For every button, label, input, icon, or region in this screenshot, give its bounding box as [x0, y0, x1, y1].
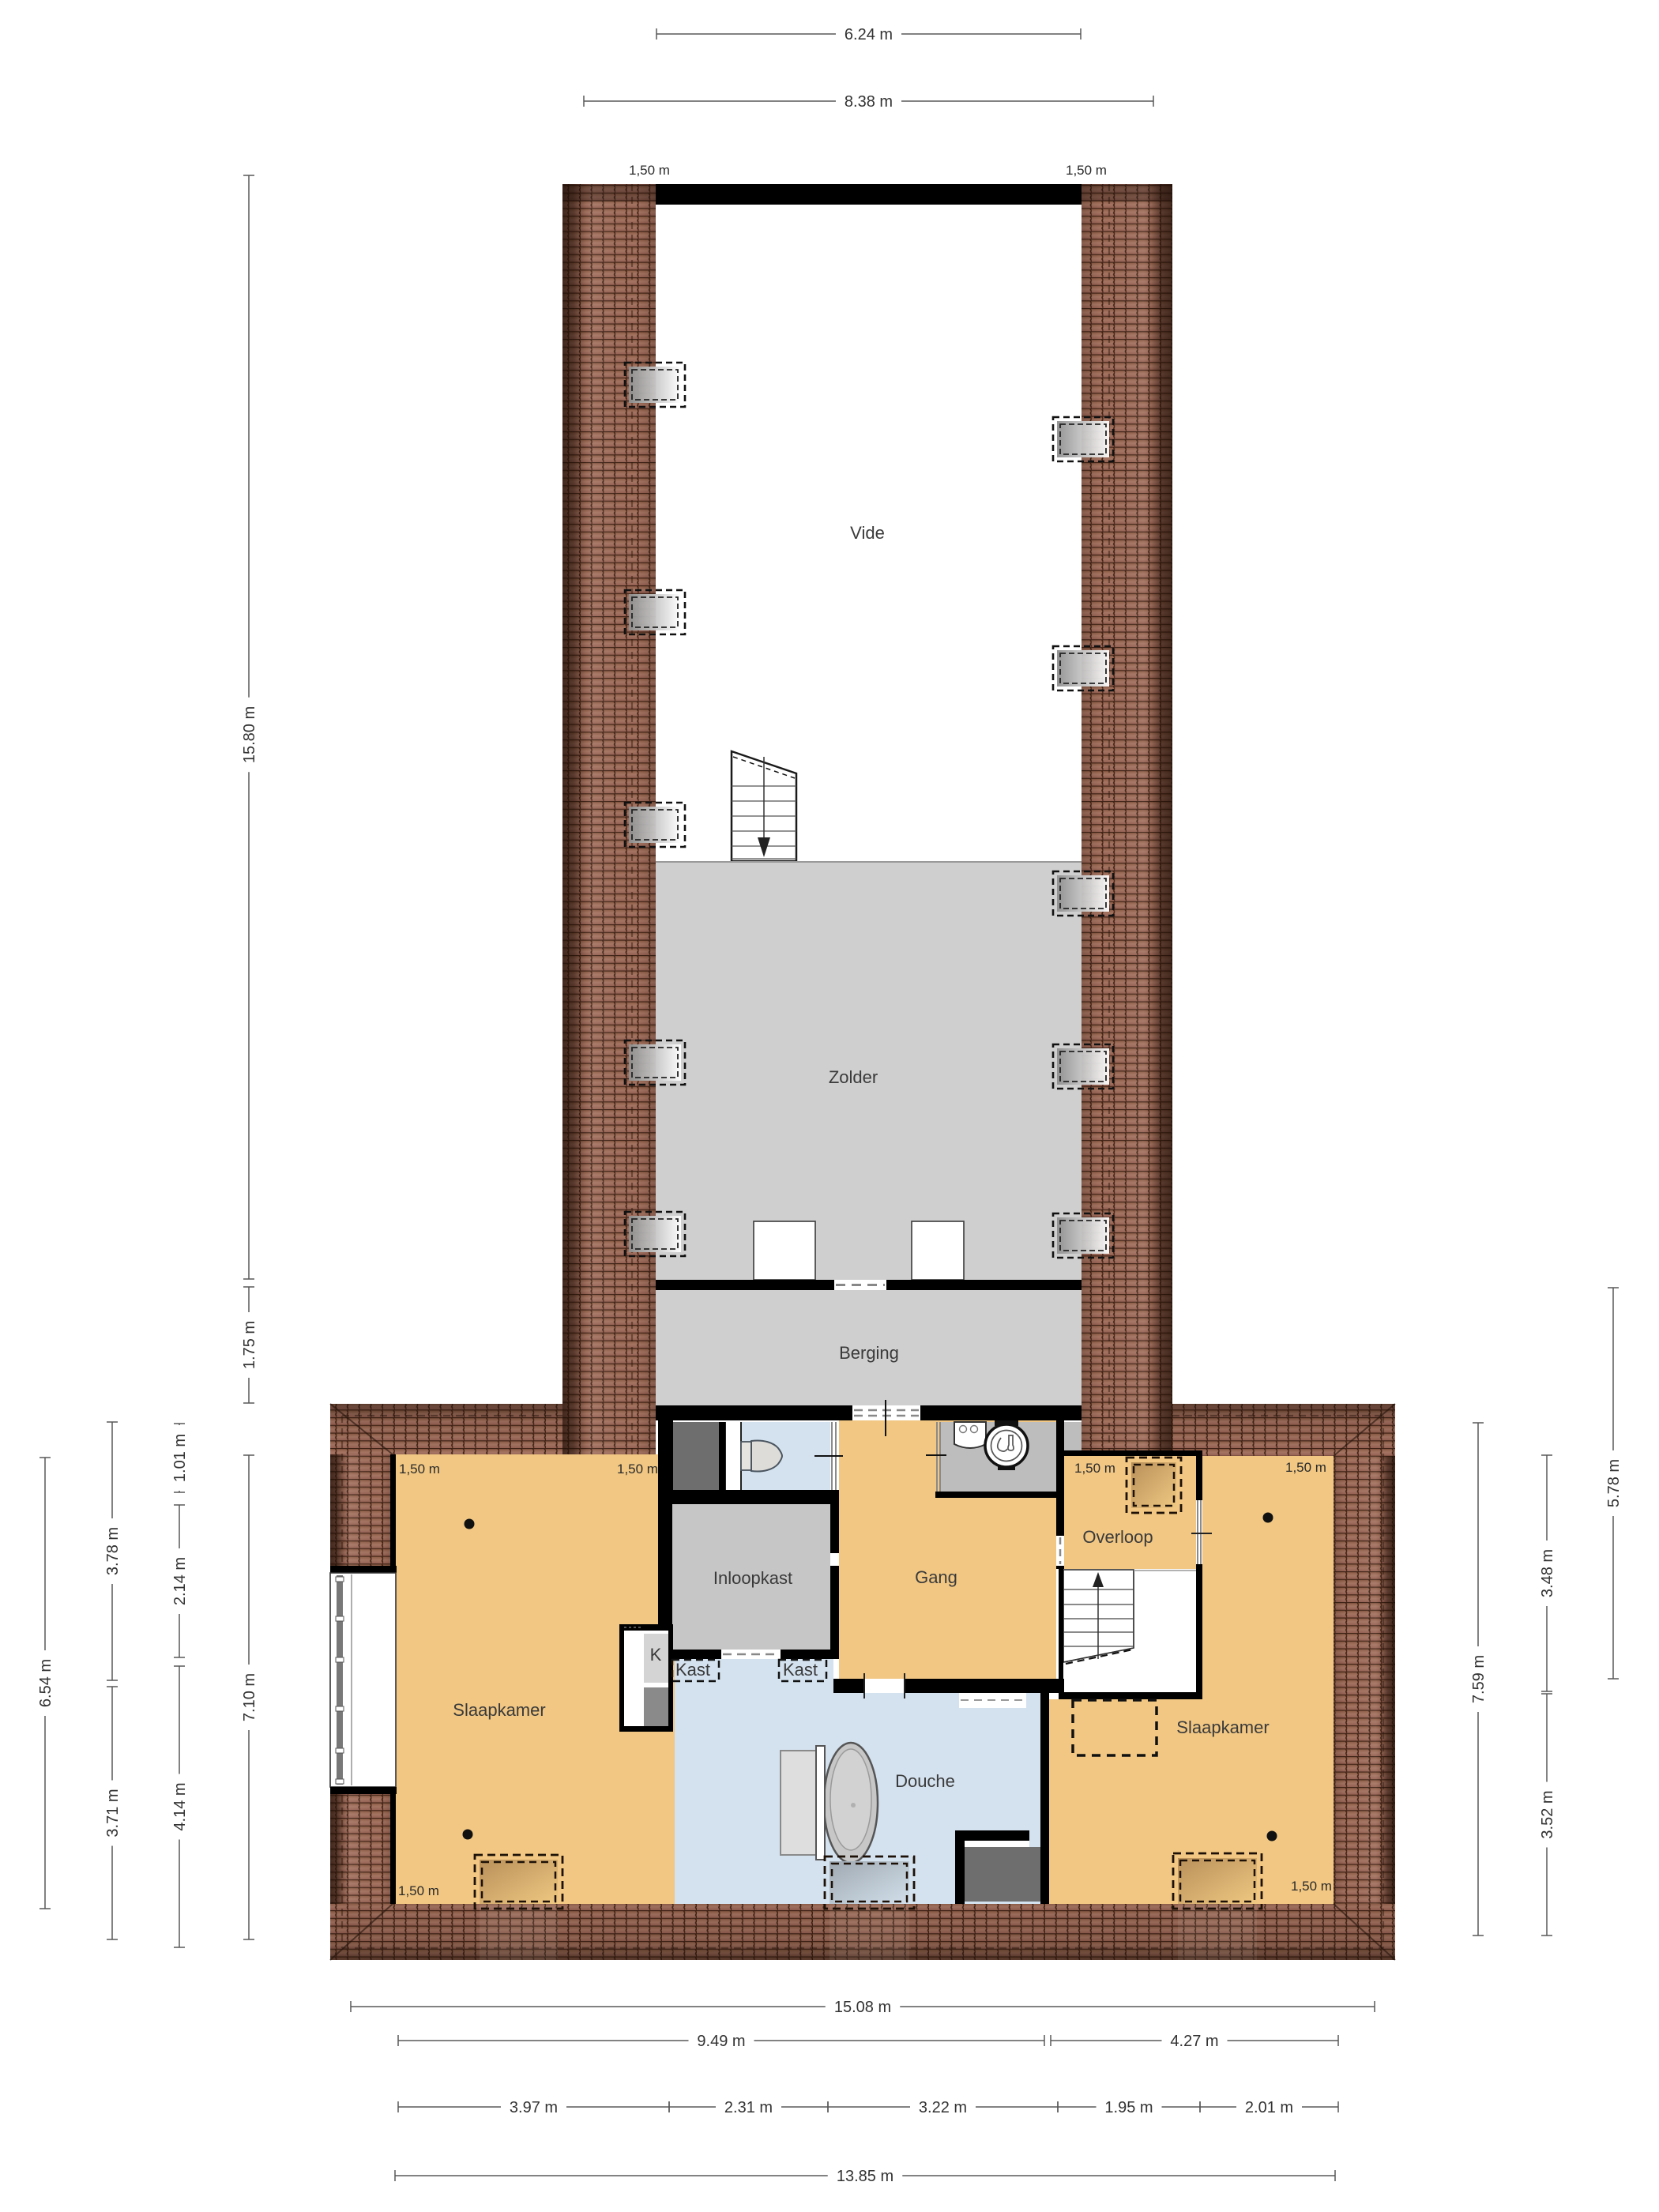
svg-text:1,50 m: 1,50 m	[617, 1461, 658, 1477]
svg-text:1,50 m: 1,50 m	[399, 1461, 440, 1477]
svg-text:3.71 m: 3.71 m	[104, 1789, 122, 1837]
svg-text:Inloopkast: Inloopkast	[713, 1568, 792, 1588]
svg-text:K: K	[650, 1645, 662, 1665]
svg-text:1,50 m: 1,50 m	[1074, 1461, 1115, 1476]
svg-text:4.27 m: 4.27 m	[1170, 2033, 1218, 2050]
svg-text:3.78 m: 3.78 m	[104, 1527, 122, 1575]
svg-text:2.01 m: 2.01 m	[1245, 2099, 1293, 2116]
svg-text:2.31 m: 2.31 m	[724, 2099, 773, 2116]
svg-text:1,50 m: 1,50 m	[1066, 163, 1107, 178]
svg-text:3.48 m: 3.48 m	[1539, 1549, 1556, 1597]
svg-text:Slaapkamer: Slaapkamer	[1176, 1717, 1269, 1737]
svg-text:1.75 m: 1.75 m	[241, 1321, 258, 1369]
svg-text:1,50 m: 1,50 m	[1285, 1460, 1326, 1475]
svg-text:Douche: Douche	[895, 1771, 955, 1791]
svg-text:15.80 m: 15.80 m	[241, 706, 258, 763]
svg-text:8.38 m: 8.38 m	[845, 93, 893, 111]
svg-text:4.14 m: 4.14 m	[171, 1782, 189, 1830]
svg-text:15.08 m: 15.08 m	[834, 1999, 891, 2016]
svg-text:Gang: Gang	[915, 1567, 957, 1587]
svg-text:Kast: Kast	[675, 1660, 710, 1680]
svg-text:1.01 m: 1.01 m	[171, 1434, 189, 1482]
svg-text:Kast: Kast	[783, 1660, 818, 1680]
svg-text:3.22 m: 3.22 m	[919, 2099, 967, 2116]
svg-text:1.95 m: 1.95 m	[1104, 2099, 1153, 2116]
svg-text:6.24 m: 6.24 m	[845, 26, 893, 43]
svg-text:3.52 m: 3.52 m	[1539, 1790, 1556, 1838]
svg-text:7.59 m: 7.59 m	[1470, 1655, 1488, 1703]
svg-text:Vide: Vide	[850, 523, 885, 543]
svg-text:1,50 m: 1,50 m	[398, 1883, 439, 1898]
svg-text:5.78 m: 5.78 m	[1605, 1459, 1623, 1507]
svg-text:2.14 m: 2.14 m	[171, 1557, 189, 1605]
svg-text:1,50 m: 1,50 m	[629, 163, 670, 178]
svg-text:Overloop: Overloop	[1082, 1527, 1153, 1547]
svg-text:9.49 m: 9.49 m	[697, 2033, 745, 2050]
svg-text:Zolder: Zolder	[829, 1067, 878, 1087]
svg-text:Slaapkamer: Slaapkamer	[453, 1700, 545, 1720]
svg-text:3.97 m: 3.97 m	[510, 2099, 558, 2116]
svg-text:7.10 m: 7.10 m	[241, 1673, 258, 1721]
svg-text:1,50 m: 1,50 m	[1291, 1879, 1332, 1894]
svg-text:13.85 m: 13.85 m	[837, 2168, 893, 2185]
svg-text:6.54 m: 6.54 m	[37, 1659, 55, 1707]
svg-text:Berging: Berging	[839, 1343, 899, 1363]
